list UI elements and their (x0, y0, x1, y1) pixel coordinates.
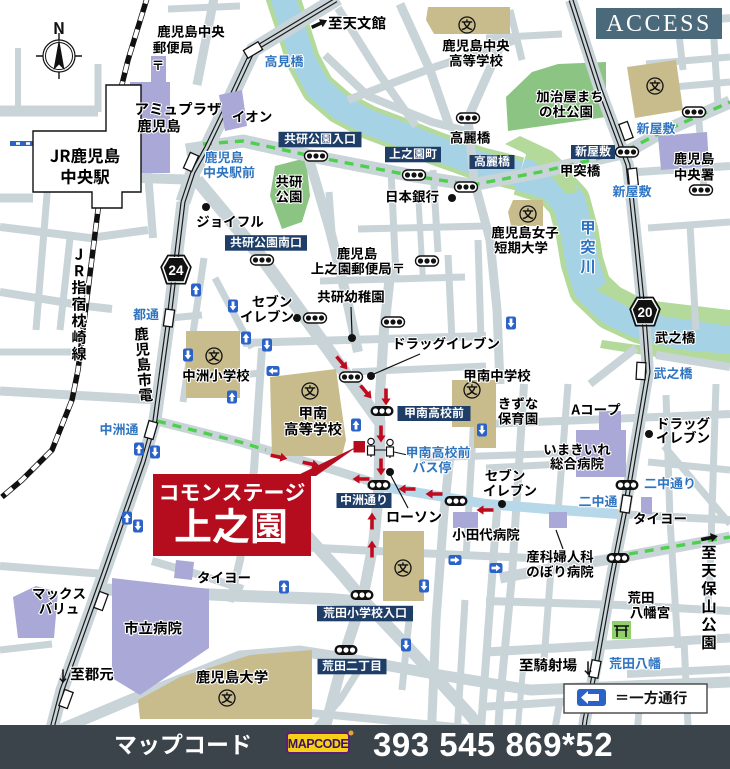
svg-text:MAPCODE: MAPCODE (288, 737, 349, 751)
svg-text:ACCESS: ACCESS (606, 11, 712, 37)
svg-text:393 545 869*52: 393 545 869*52 (373, 726, 613, 763)
svg-text:24: 24 (168, 263, 184, 278)
svg-text:20: 20 (637, 305, 652, 320)
